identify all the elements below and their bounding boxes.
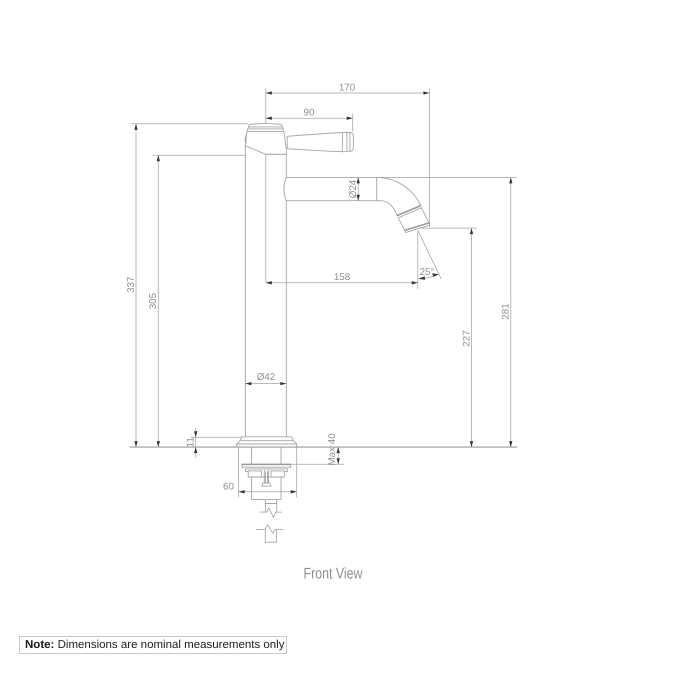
svg-text:170: 170 — [339, 83, 356, 94]
svg-text:60: 60 — [223, 482, 234, 493]
svg-text:Ø24: Ø24 — [348, 179, 359, 198]
svg-text:227: 227 — [461, 330, 472, 346]
svg-text:Front View: Front View — [304, 566, 364, 583]
svg-text:337: 337 — [126, 277, 137, 293]
svg-text:158: 158 — [334, 272, 351, 283]
svg-text:281: 281 — [501, 303, 512, 319]
svg-text:90: 90 — [304, 108, 315, 119]
svg-text:305: 305 — [148, 292, 159, 309]
svg-text:Max 40: Max 40 — [327, 433, 338, 466]
svg-text:Ø42: Ø42 — [257, 372, 276, 383]
svg-text:25°: 25° — [420, 267, 435, 278]
svg-text:11: 11 — [186, 437, 197, 447]
